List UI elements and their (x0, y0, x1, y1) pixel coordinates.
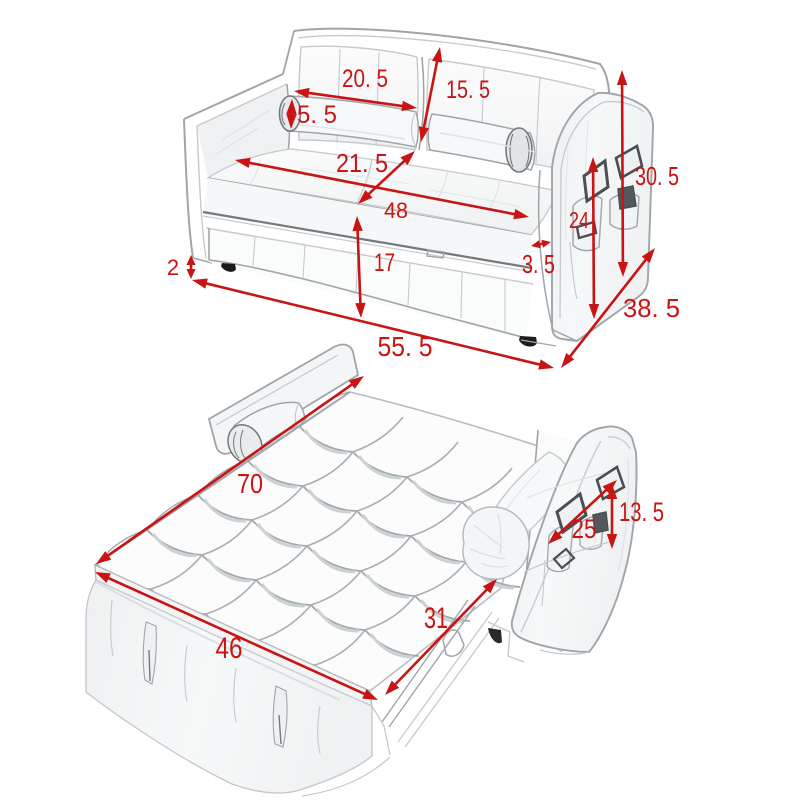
svg-text:46: 46 (216, 632, 243, 665)
svg-text:21. 5: 21. 5 (336, 148, 388, 178)
svg-text:13. 5: 13. 5 (619, 497, 664, 527)
svg-text:30. 5: 30. 5 (635, 161, 679, 191)
svg-text:70: 70 (237, 468, 263, 499)
svg-text:3. 5: 3. 5 (522, 249, 555, 279)
svg-text:31: 31 (424, 602, 448, 635)
svg-text:17: 17 (374, 249, 395, 277)
svg-text:55. 5: 55. 5 (378, 331, 433, 362)
svg-text:5. 5: 5. 5 (297, 101, 337, 129)
svg-text:15. 5: 15. 5 (446, 76, 490, 104)
svg-text:48: 48 (384, 198, 408, 223)
svg-text:38. 5: 38. 5 (623, 293, 680, 323)
svg-text:25: 25 (572, 514, 597, 544)
svg-text:20. 5: 20. 5 (342, 65, 388, 93)
svg-text:2: 2 (167, 255, 179, 280)
svg-text:24: 24 (569, 207, 589, 233)
